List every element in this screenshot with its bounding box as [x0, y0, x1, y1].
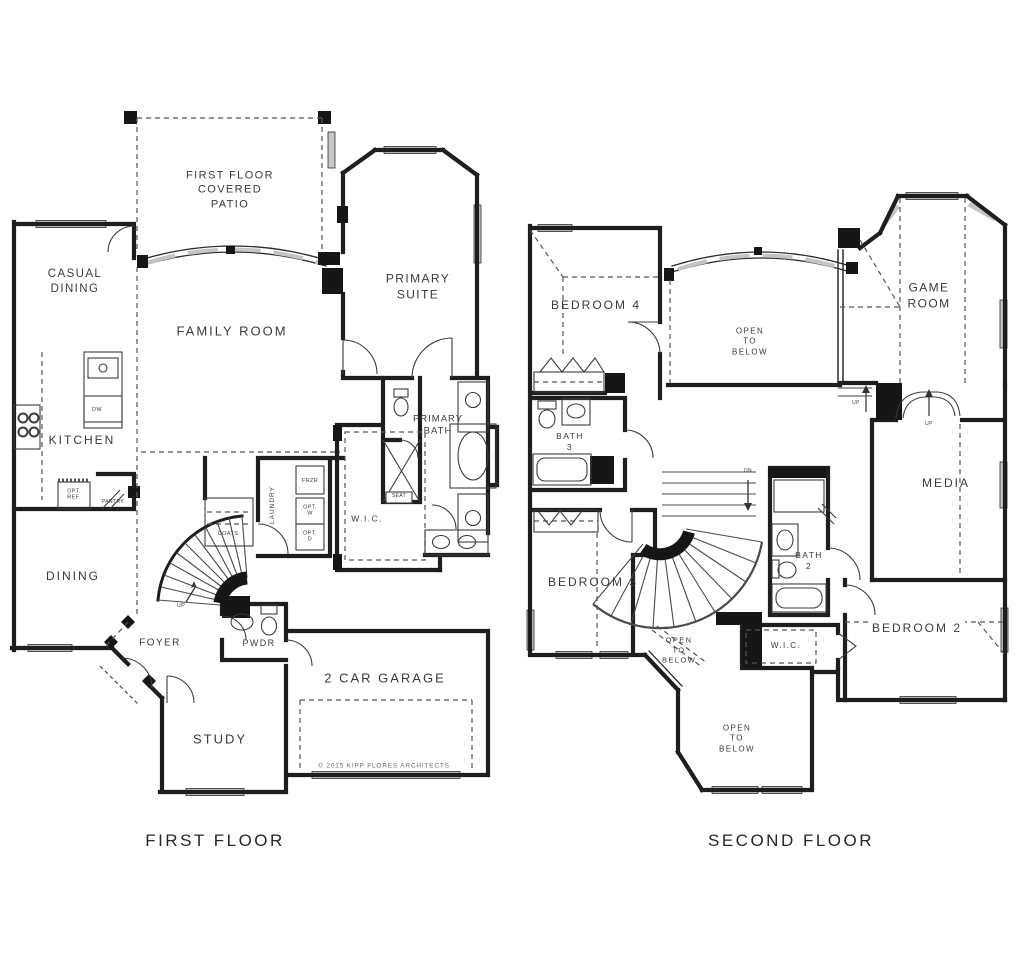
bath2-shower [774, 480, 824, 512]
room-label-foyer: FOYER [139, 637, 180, 650]
dishwasher [84, 396, 122, 422]
closet-rod [538, 511, 582, 525]
room-label-bedroom4: BEDROOM 4 [551, 298, 641, 314]
sink [466, 393, 481, 408]
room-label-primary-bath: PRIMARY BATH [413, 414, 463, 439]
closet-label-coats: COATS [218, 531, 239, 537]
room-label-casual-dining: CASUAL DINING [48, 267, 102, 297]
room-label-game-room: GAME ROOM [908, 280, 951, 311]
stair-label-up-left: UP [852, 401, 860, 407]
area-label-open-to-below-top: OPEN TO BELOW [732, 326, 768, 357]
bath-toilet [394, 398, 408, 416]
room-label-wic-sf: W.I.C. [771, 641, 801, 651]
floorplan-drawing [0, 0, 1024, 966]
fixture-label-seat: SEAT [392, 494, 406, 500]
fixture-label-opt-d: OPT. D [303, 531, 317, 544]
room-label-kitchen: KITCHEN [49, 433, 116, 449]
room-label-laundry: LAUNDRY [269, 486, 277, 524]
ff-fixtures [14, 352, 496, 704]
caption-first-floor: FIRST FLOOR [145, 831, 285, 851]
bath3-toilet [539, 410, 555, 428]
bath3-sink [567, 404, 585, 418]
fixture-label-frzr: FRZR [302, 478, 318, 484]
room-label-bedroom2: BEDROOM 2 [869, 621, 965, 637]
room-label-pantry: PANTRY [102, 500, 124, 506]
room-label-study: STUDY [193, 732, 247, 749]
room-label-pwdr: PWDR [242, 638, 275, 650]
pwdr-toilet [262, 617, 277, 635]
room-label-primary-suite: PRIMARY SUITE [386, 271, 450, 302]
copyright-text: © 2015 KIPP FLORES ARCHITECTS [318, 762, 450, 769]
fixture-label-opt-ref: OPT. REF. [67, 489, 81, 502]
room-label-bath2: BATH 2 [795, 550, 823, 572]
room-label-garage: 2 CAR GARAGE [324, 671, 446, 688]
sf-stairs [593, 472, 762, 628]
floorplan-page: FIRST FLOOR COVERED PATIO CASUAL DINING … [0, 0, 1024, 966]
sf-wall-chunks [590, 228, 902, 668]
room-label-bath3: BATH 3 [556, 431, 584, 453]
area-label-open-to-below-bottom: OPEN TO BELOW [719, 723, 755, 754]
room-label-wic-ff: W.I.C. [351, 513, 383, 524]
fixture-label-opt-w: OPT. W [303, 505, 317, 518]
fixture-label-dw: DW [92, 407, 102, 413]
room-label-family-room: FAMILY ROOM [176, 324, 287, 341]
caption-second-floor: SECOND FLOOR [708, 831, 874, 851]
stair-label-dn: DN [744, 469, 752, 475]
sf-dashed [530, 198, 1005, 667]
room-label-media: MEDIA [922, 476, 970, 492]
bath2-toilet [778, 562, 796, 578]
room-label-patio: FIRST FLOOR COVERED PATIO [186, 169, 274, 212]
closet-rod [540, 358, 604, 372]
bath2-sink [777, 530, 793, 550]
stair-label-up-right: UP [925, 422, 933, 428]
area-label-open-to-below-mid: OPEN TO BELOW [662, 635, 696, 664]
ff-windows [28, 132, 481, 796]
stair-label-up-ff: UP [177, 603, 185, 609]
first-floor-plan [12, 111, 497, 796]
ff-walls [12, 150, 497, 792]
sink [466, 511, 481, 526]
room-label-bedroom3: BEDROOM 3 [548, 575, 638, 591]
room-label-dining: DINING [46, 569, 100, 585]
